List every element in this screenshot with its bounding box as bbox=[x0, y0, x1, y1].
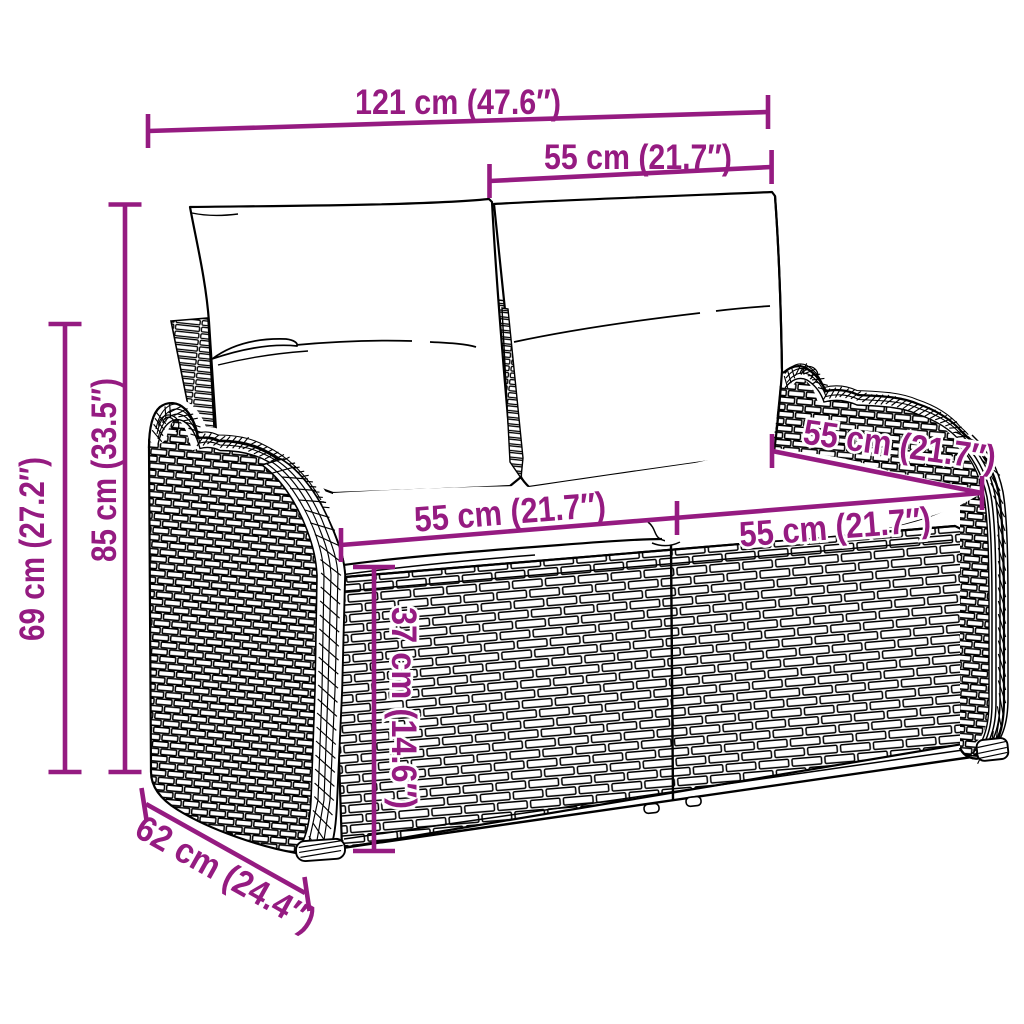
svg-text:69 cm (27.2″): 69 cm (27.2″) bbox=[12, 457, 52, 641]
svg-text:121 cm (47.6″): 121 cm (47.6″) bbox=[355, 82, 561, 122]
svg-text:55 cm (21.7″): 55 cm (21.7″) bbox=[544, 137, 732, 177]
svg-text:37 cm (14.6″): 37 cm (14.6″) bbox=[384, 607, 424, 809]
svg-text:85 cm (33.5″): 85 cm (33.5″) bbox=[84, 378, 124, 562]
